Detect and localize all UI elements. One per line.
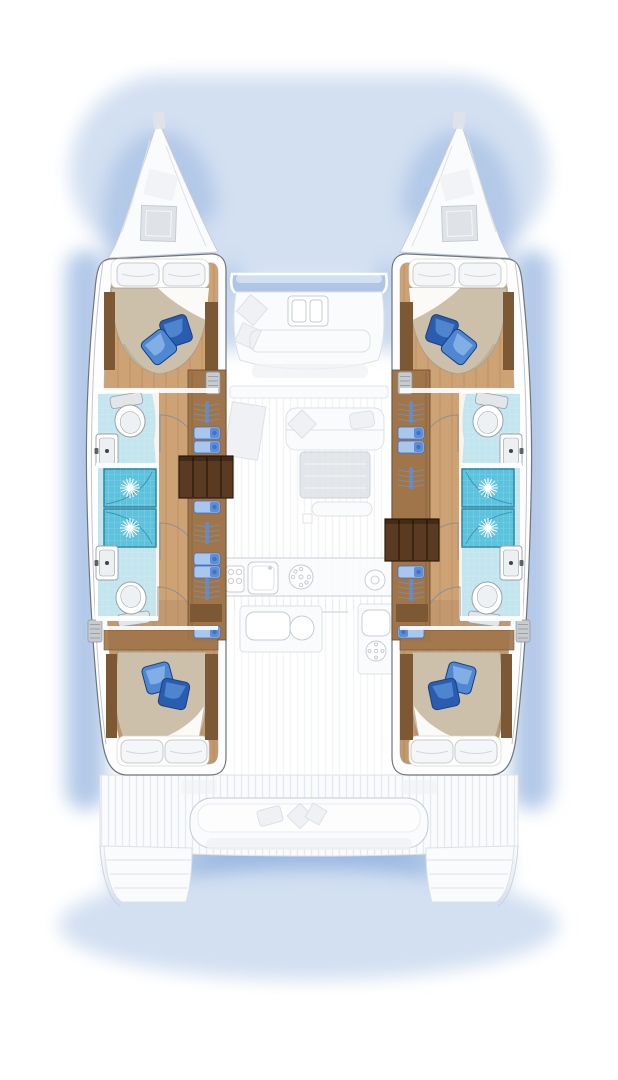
dining-table <box>300 452 370 498</box>
round-basin <box>290 616 314 640</box>
burner-icon <box>289 565 313 589</box>
deck-step <box>230 386 388 398</box>
stairs-icon <box>385 519 439 561</box>
boat-plan <box>0 0 618 1080</box>
windshield-glare <box>236 275 382 283</box>
stairs-icon <box>179 456 233 498</box>
forward-cockpit <box>234 292 384 378</box>
catamaran-floorplan-canvas <box>0 0 618 1080</box>
cushion <box>349 410 375 429</box>
burner-icon <box>366 641 386 661</box>
white-pouf <box>303 514 312 523</box>
starboard-hull <box>392 254 532 775</box>
counter-sink <box>246 612 290 640</box>
galley <box>222 558 398 774</box>
bench <box>312 502 372 516</box>
deck-locker <box>181 780 217 794</box>
seat-front <box>252 364 368 378</box>
deck-locker <box>401 780 437 794</box>
port-hull <box>86 254 226 775</box>
burner-icon <box>365 570 385 590</box>
